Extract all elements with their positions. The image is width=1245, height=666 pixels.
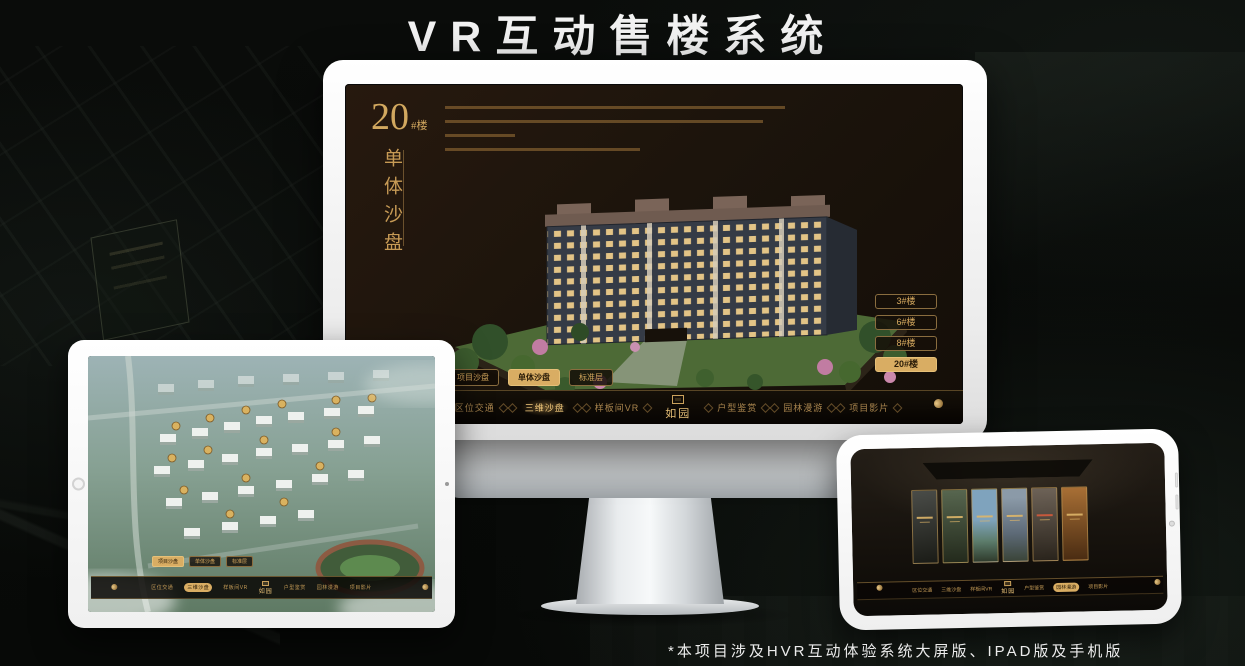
tablet-tab-standard-floor[interactable]: 标准层 (226, 556, 253, 567)
scene-panel[interactable] (1061, 486, 1089, 561)
tab-single-sandtable[interactable]: 单体沙盘 (508, 369, 560, 386)
floor-button-6[interactable]: 6#楼 (875, 315, 937, 330)
phone-nav-item-floorplans[interactable]: 户型鉴赏 (1024, 584, 1044, 591)
scroll-handle-icon[interactable] (911, 397, 940, 423)
monitor-stand-neck (576, 496, 724, 604)
tablet-nav-item-project-film[interactable]: 项目影片 (350, 584, 372, 591)
phone-nav-item-showroom-vr[interactable]: 样板间VR (970, 585, 992, 592)
brand-logo: 如园 (665, 395, 691, 421)
aerial-masterplan-image (88, 356, 435, 612)
phone-screen: 区位交通 三维沙盘 样板间VR 如园 户型鉴赏 园林漫游 项目影片 (850, 443, 1167, 617)
tablet-nav-item-garden-roam[interactable]: 园林漫游 (317, 584, 339, 591)
view-tab-group: 项目沙盘 单体沙盘 标准层 (447, 369, 613, 386)
tablet-camera-icon (445, 482, 449, 486)
scene-panel[interactable] (1001, 488, 1029, 563)
floor-button-3[interactable]: 3#楼 (875, 294, 937, 309)
background-aerial-photo (975, 52, 1245, 302)
tablet-home-button[interactable] (72, 478, 85, 491)
phone-volume-button (1175, 472, 1178, 487)
nav-item-showroom-vr[interactable]: 样板间VR (595, 401, 640, 414)
scene-panel[interactable] (1031, 487, 1059, 562)
tablet-brand-logo: 如园 (259, 581, 273, 595)
tablet-nav-item-3d-sandtable[interactable]: 三维沙盘 (184, 583, 212, 592)
stage: VR互动售楼系统 20#楼 单体沙盘 (0, 0, 1245, 666)
monitor-stand-top (447, 438, 855, 498)
unit-number: 20 (371, 96, 409, 138)
nav-item-location[interactable]: 区位交通 (455, 401, 495, 414)
page-title: VR互动售楼系统 (0, 2, 1245, 64)
tablet-screen: 项目沙盘 单体沙盘 标准层 区位交通 三维沙盘 样板间VR 如园 户型鉴赏 园林… (88, 356, 435, 612)
scene-panel[interactable] (911, 489, 939, 564)
tablet-nav-bar: 区位交通 三维沙盘 样板间VR 如园 户型鉴赏 园林漫游 项目影片 (91, 576, 432, 599)
scene-panel-gallery (911, 486, 1089, 564)
phone-camera-icon (1169, 521, 1175, 527)
unit-title: 20#楼 (371, 98, 428, 136)
phone-volume-button (1175, 494, 1178, 509)
footnote-text: *本项目涉及HVR互动体验系统大屏版、IPAD版及手机版 (668, 640, 1123, 661)
scene-panel[interactable] (971, 488, 999, 563)
phone-brand-logo: 如园 (1001, 581, 1015, 595)
phone-nav-item-project-film[interactable]: 项目影片 (1088, 582, 1108, 589)
phone-nav-item-garden-roam[interactable]: 园林漫游 (1053, 582, 1079, 592)
unit-suffix: #楼 (411, 120, 428, 132)
background-framed-sign (90, 219, 189, 341)
tablet-nav-item-floorplans[interactable]: 户型鉴赏 (284, 584, 306, 591)
nav-item-garden-roam[interactable]: 园林漫游 (783, 401, 823, 414)
phone-nav-item-3d-sandtable[interactable]: 三维沙盘 (941, 586, 961, 593)
tablet-nav-item-location[interactable]: 区位交通 (151, 584, 173, 591)
tablet-nav-item-showroom-vr[interactable]: 样板间VR (223, 584, 247, 591)
nav-item-3d-sandtable[interactable]: 三维沙盘 (521, 399, 569, 416)
phone-device: 区位交通 三维沙盘 样板间VR 如园 户型鉴赏 园林漫游 项目影片 (836, 428, 1182, 630)
tablet-brand-logo-text: 如园 (259, 586, 273, 595)
tablet-device: 项目沙盘 单体沙盘 标准层 区位交通 三维沙盘 样板间VR 如园 户型鉴赏 园林… (68, 340, 455, 628)
floor-button-20[interactable]: 20#楼 (875, 357, 937, 372)
phone-nav-bar: 区位交通 三维沙盘 样板间VR 如园 户型鉴赏 园林漫游 项目影片 (857, 576, 1163, 600)
courtyard-roof-silhouette (922, 452, 1092, 480)
floor-button-8[interactable]: 8#楼 (875, 336, 937, 351)
phone-brand-logo-text: 如园 (1001, 586, 1015, 595)
tab-standard-floor[interactable]: 标准层 (569, 369, 613, 386)
scene-panel[interactable] (941, 489, 969, 564)
phone-nav-item-location[interactable]: 区位交通 (912, 586, 932, 593)
tablet-view-tab-group: 项目沙盘 单体沙盘 标准层 (152, 556, 253, 567)
seal-icon (672, 395, 684, 404)
nav-item-floorplans[interactable]: 户型鉴赏 (717, 401, 757, 414)
tablet-tab-single-sandtable[interactable]: 单体沙盘 (189, 556, 221, 567)
nav-item-project-film[interactable]: 项目影片 (849, 401, 889, 414)
brand-logo-text: 如园 (665, 405, 691, 421)
floor-button-group: 3#楼 6#楼 8#楼 20#楼 (875, 294, 937, 372)
tablet-tab-project-sandtable[interactable]: 项目沙盘 (152, 556, 184, 567)
building-render-image (395, 142, 915, 392)
